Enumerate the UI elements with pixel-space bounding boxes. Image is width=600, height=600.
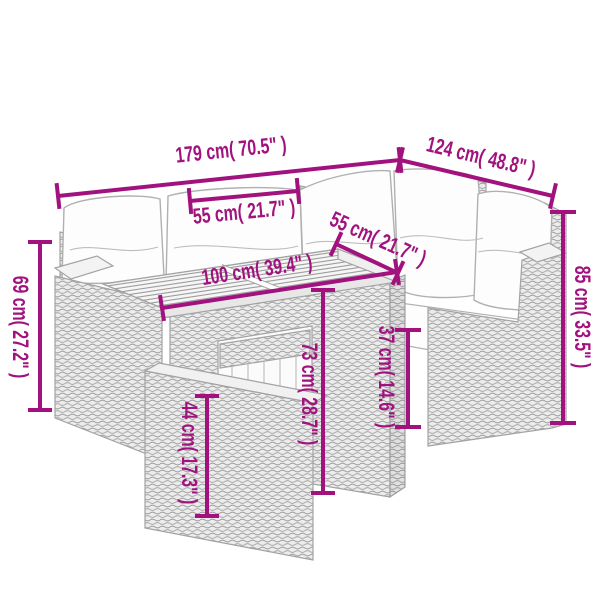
dim-label-seat-height: 37 cm( 14.6" ) <box>375 326 397 429</box>
back-cushion <box>394 169 487 298</box>
dim-label-sofa-height-left: 69 cm( 27.2" ) <box>9 276 31 379</box>
furniture-illustration <box>0 0 600 600</box>
dim-label-table-height: 73 cm( 28.7" ) <box>298 343 320 446</box>
product-dimension-diagram: 179 cm( 70.5" ) 124 cm( 48.8" ) 55 cm( 2… <box>0 0 600 600</box>
dim-label-sofa-height-right: 85 cm( 33.5" ) <box>571 266 593 369</box>
dim-label-ottoman-height: 44 cm( 17.3" ) <box>178 402 200 505</box>
